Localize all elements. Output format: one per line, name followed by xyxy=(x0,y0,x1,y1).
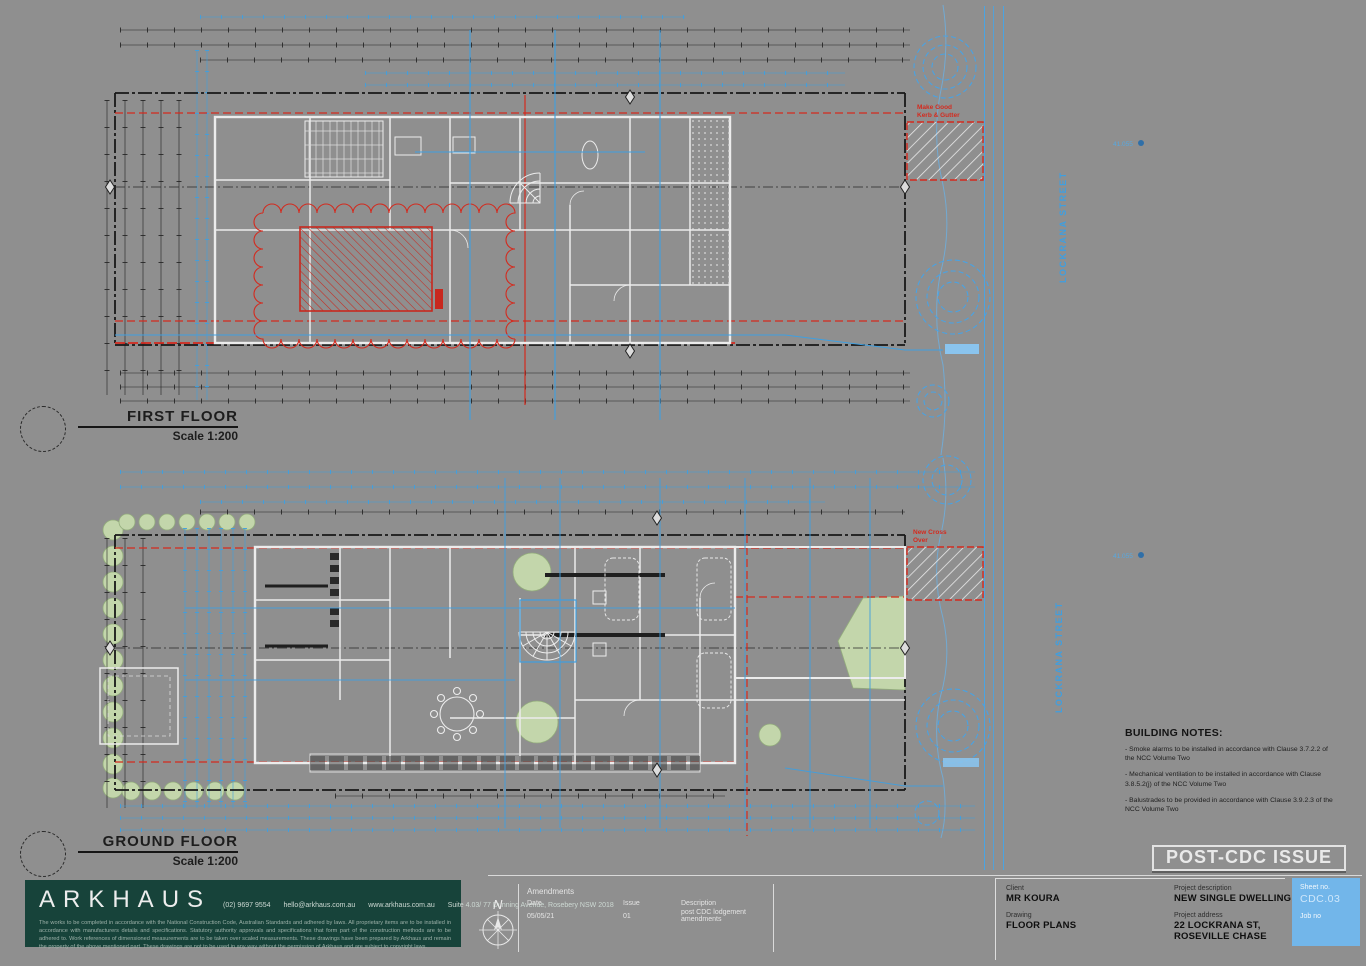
firm-disclaimer: The works to be completed in accordance … xyxy=(39,919,451,951)
north-letter: N xyxy=(493,897,503,912)
firm-website[interactable]: www.arkhaus.com.au xyxy=(368,902,435,909)
plan-scale: Scale 1:200 xyxy=(78,854,238,868)
post-cdc-issue-stamp: POST-CDC ISSUE xyxy=(1152,845,1346,871)
project-address-label: Project address xyxy=(1174,912,1292,919)
project-info-panel: Client MR KOURA Drawing FLOOR PLANS Proj… xyxy=(995,878,1285,960)
new-crossover-note-line1: New Cross xyxy=(913,529,947,536)
plan-scale: Scale 1:200 xyxy=(78,429,238,443)
firm-logo: ARKHAUS xyxy=(39,886,211,914)
sheet-no-label: Sheet no. xyxy=(1300,884,1360,891)
level-marker: 41.055 xyxy=(1113,140,1144,148)
drawing-name: FLOOR PLANS xyxy=(1006,920,1166,931)
job-no-label: Job no xyxy=(1300,913,1360,920)
left-block-details xyxy=(100,553,700,772)
make-good-note-line2: Kerb & Gutter xyxy=(917,112,960,119)
project-address-line1: 22 LOCKRANA ST, xyxy=(1174,920,1292,931)
project-address-line2: ROSEVILLE CHASE xyxy=(1174,931,1292,942)
make-good-note-line1: Make Good xyxy=(917,104,952,111)
svg-text:41.055: 41.055 xyxy=(1113,553,1133,560)
site-boundary xyxy=(115,93,905,345)
building-note-item: - Smoke alarms to be installed in accord… xyxy=(1125,745,1337,763)
amendments-col-issue: Issue xyxy=(623,900,681,909)
project-description-label: Project description xyxy=(1174,885,1292,892)
amendments-title: Amendments xyxy=(527,887,773,896)
curved-stair xyxy=(519,600,576,662)
drawing-sheet: Make Good Kerb & Gutter 41.055 xyxy=(0,0,1366,966)
site-boundary xyxy=(115,535,905,790)
red-hatch-area xyxy=(254,204,515,348)
drawing-label: Drawing xyxy=(1006,912,1166,919)
ground-floor-walls xyxy=(255,547,905,763)
first-floor-walls xyxy=(215,117,730,343)
street-name-label-upper: LOCKRANA STREET xyxy=(1058,163,1068,283)
firm-panel: ARKHAUS (02) 9697 9554 hello@arkhaus.com… xyxy=(25,880,461,947)
amendments-col-description: Description xyxy=(681,900,773,909)
amendment-description: post CDC lodgement amendments xyxy=(681,909,773,923)
existing-trees xyxy=(914,36,990,417)
amendment-issue: 01 xyxy=(623,909,681,923)
new-crossover-note-line2: Over xyxy=(913,537,928,544)
building-notes: BUILDING NOTES: - Smoke alarms to be ins… xyxy=(1125,727,1337,821)
title-block-divider xyxy=(488,875,1362,876)
amendment-row: 05/05/21 01 post CDC lodgement amendment… xyxy=(527,909,773,923)
crossover-hatch: Make Good Kerb & Gutter xyxy=(907,104,983,180)
plan-title: GROUND FLOOR xyxy=(78,833,238,850)
client-label: Client xyxy=(1006,885,1166,892)
sheet-no-value: CDC.03 xyxy=(1300,893,1360,905)
dining-table xyxy=(431,688,484,741)
crossover-hatch: New Cross Over xyxy=(907,529,983,600)
drawing-reference-bubble xyxy=(20,406,66,452)
ground-floor-plan-drawing: New Cross Over 41.055 xyxy=(85,458,1160,838)
svg-text:41.055: 41.055 xyxy=(1113,141,1133,148)
client-name: MR KOURA xyxy=(1006,893,1166,904)
amendments-col-date: Date xyxy=(527,900,623,909)
north-arrow: N xyxy=(477,897,519,951)
markup-lines-blue xyxy=(115,30,979,420)
building-notes-title: BUILDING NOTES: xyxy=(1125,727,1337,739)
amendment-date: 05/05/21 xyxy=(527,909,623,923)
plan-title: FIRST FLOOR xyxy=(78,408,238,425)
building-note-item: - Mechanical ventilation to be installed… xyxy=(1125,770,1337,788)
project-description: NEW SINGLE DWELLING xyxy=(1174,893,1292,904)
firm-email[interactable]: hello@arkhaus.com.au xyxy=(284,902,356,909)
firm-phone: (02) 9697 9554 xyxy=(223,902,270,909)
first-floor-plan-drawing: Make Good Kerb & Gutter 41.055 xyxy=(85,5,1160,455)
existing-trees xyxy=(915,456,990,825)
amendments-table: Amendments Date Issue Description 05/05/… xyxy=(518,884,774,952)
drawing-reference-bubble xyxy=(20,831,66,877)
level-marker: 41.055 xyxy=(1113,552,1144,560)
street-name-label-lower: LOCKRANA STREET xyxy=(1054,593,1064,713)
sheet-number-box: Sheet no. CDC.03 Job no xyxy=(1292,878,1360,946)
building-note-item: - Balustrades to be provided in accordan… xyxy=(1125,796,1337,814)
